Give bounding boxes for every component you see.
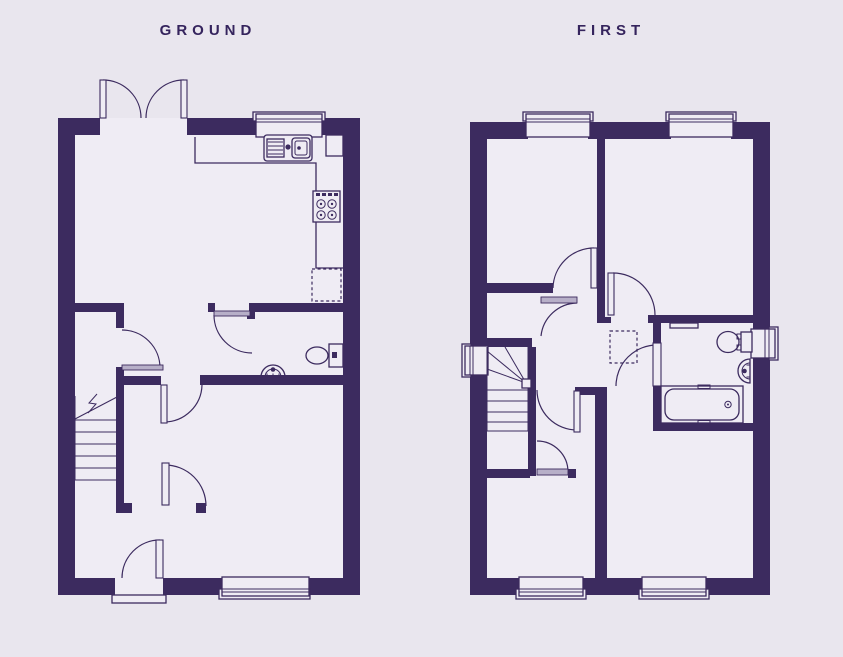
landing-door-leaf (541, 297, 577, 303)
wc-door-leaf (214, 311, 250, 316)
bathroom-bath (661, 385, 743, 424)
hob (313, 191, 340, 222)
bedroom-2-door-leaf (608, 273, 614, 315)
ground-floor-plan (58, 80, 360, 603)
lobby-door-leaf (162, 463, 169, 505)
counter-corner (326, 135, 343, 156)
hall-door-leaf (122, 365, 163, 370)
bedroom-3-door-leaf (574, 391, 580, 432)
living-room-door-leaf (161, 385, 167, 423)
stair-winder-node (522, 379, 531, 388)
bedroom-1-window (523, 112, 593, 137)
entrance-door-leaf (156, 540, 163, 578)
towel-shelf (670, 323, 698, 328)
bedroom-1-door-leaf (591, 248, 597, 288)
living-room-window (219, 577, 310, 599)
french-door-left-leaf (100, 80, 106, 118)
kitchen-window (253, 112, 325, 137)
floorplan-page: GROUND FIRST (0, 0, 843, 657)
bedroom-4-window (516, 577, 586, 599)
french-door-right-leaf (181, 80, 187, 118)
bedroom-4-door-leaf (537, 469, 568, 475)
sink-tap (285, 144, 290, 149)
bedroom-3-window (639, 577, 709, 599)
bathroom-window (751, 327, 778, 360)
kitchen-sink (264, 135, 312, 161)
french-doors (100, 80, 187, 118)
first-floor-plan (462, 112, 778, 599)
sink-drain (297, 146, 301, 150)
first-floor-area (470, 122, 770, 595)
floorplan-drawing (0, 0, 843, 657)
bedroom-2-window (666, 112, 736, 137)
basin-drain (742, 369, 747, 374)
basin-tap (271, 367, 276, 372)
stair-window (462, 344, 488, 377)
entrance-step (112, 595, 166, 603)
bathroom-door-leaf (653, 343, 661, 386)
bathroom-toilet (717, 332, 752, 353)
